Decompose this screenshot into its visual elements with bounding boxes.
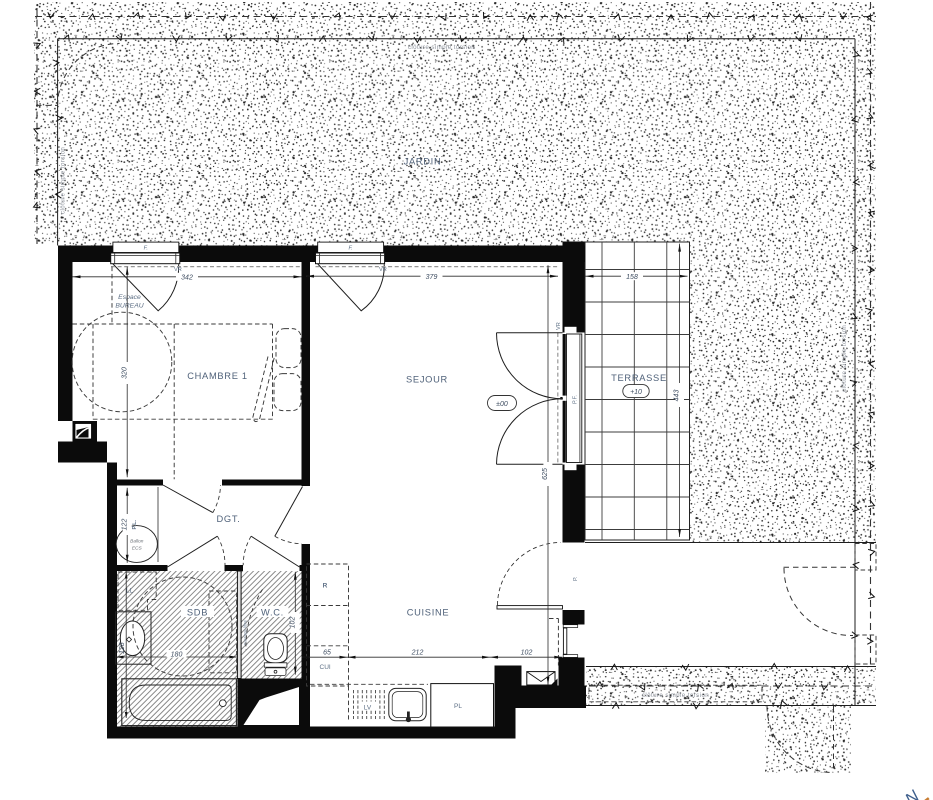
svg-text:VR: VR	[379, 267, 387, 273]
svg-text:TERRASSE: TERRASSE	[611, 373, 667, 383]
svg-text:ECS: ECS	[132, 546, 143, 552]
svg-text:379: 379	[426, 274, 438, 281]
svg-text:CUI: CUI	[320, 664, 331, 671]
svg-text:180: 180	[171, 651, 183, 658]
svg-text:SEJOUR: SEJOUR	[406, 375, 448, 385]
svg-text:clôture simple torsion: clôture simple torsion	[642, 692, 709, 699]
svg-text:±00: ±00	[496, 401, 508, 408]
svg-text:65: 65	[323, 650, 331, 657]
svg-text:LV: LV	[364, 705, 372, 712]
svg-text:P.: P.	[573, 576, 579, 581]
svg-text:128: 128	[119, 642, 126, 654]
svg-text:clôture simple torsion: clôture simple torsion	[841, 325, 848, 392]
svg-text:P.L.: P.L.	[132, 520, 138, 530]
svg-text:625: 625	[542, 468, 549, 480]
svg-text:102: 102	[521, 650, 533, 657]
svg-text:R: R	[323, 583, 328, 590]
svg-text:CHAMBRE 1: CHAMBRE 1	[187, 371, 248, 381]
svg-text:CUISINE: CUISINE	[407, 608, 450, 618]
svg-text:P.F.: P.F.	[573, 395, 579, 404]
svg-text:clôture simple torsion: clôture simple torsion	[60, 147, 67, 214]
svg-text:BUREAU: BUREAU	[115, 303, 143, 310]
svg-text:122: 122	[121, 519, 128, 531]
svg-text:clôture simple torsion: clôture simple torsion	[408, 44, 475, 51]
svg-text:W.C.: W.C.	[261, 608, 284, 618]
svg-text:Ballon: Ballon	[130, 539, 144, 545]
svg-text:158: 158	[626, 274, 638, 281]
svg-text:SDB: SDB	[187, 608, 208, 618]
svg-text:F.: F.	[144, 246, 148, 252]
svg-text:Espace: Espace	[118, 294, 141, 301]
svg-text:DGT.: DGT.	[217, 514, 241, 524]
svg-text:342: 342	[181, 274, 193, 281]
svg-text:VR: VR	[174, 267, 182, 273]
svg-text:443: 443	[674, 390, 681, 402]
svg-text:+10: +10	[630, 389, 642, 396]
svg-text:JARDIN: JARDIN	[404, 157, 442, 167]
svg-text:LL: LL	[126, 588, 134, 595]
svg-text:F.: F.	[348, 246, 352, 252]
svg-text:102: 102	[289, 617, 296, 629]
svg-text:212: 212	[411, 650, 424, 657]
svg-text:320: 320	[121, 367, 128, 379]
svg-text:VR: VR	[556, 322, 562, 330]
svg-text:PL: PL	[454, 703, 462, 710]
